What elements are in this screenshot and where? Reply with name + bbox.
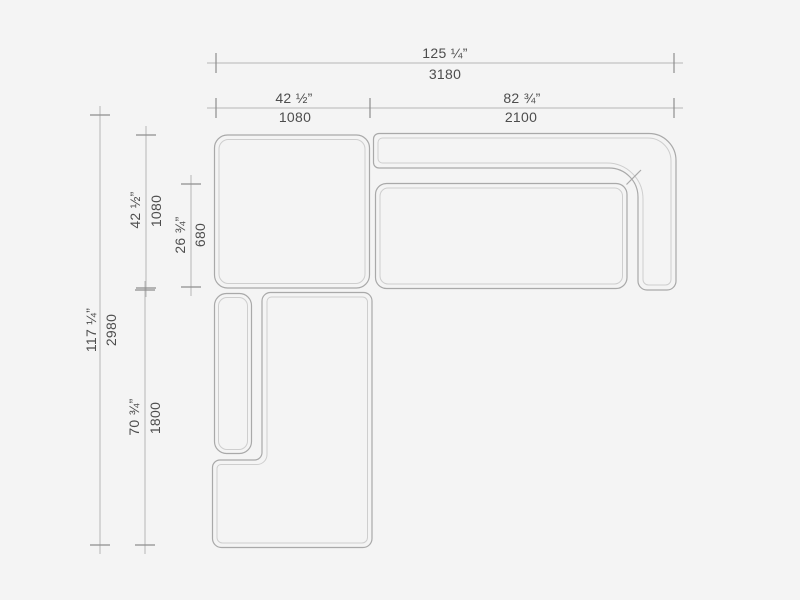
dim-overall-width-inches-label: 125 ¼”: [422, 46, 467, 60]
ottoman-cushion-line: [219, 140, 365, 284]
dim-seat-depth-inches-label: 26 ¾”: [173, 216, 187, 253]
ottoman-outline: [215, 135, 370, 288]
chaise-armrest-outline: [215, 294, 252, 454]
dim-top-module-depth-inches-label: 42 ½”: [128, 191, 142, 228]
dim-seat-depth-mm-label: 680: [193, 223, 207, 247]
chaise-armrest-cushion-line: [219, 298, 248, 450]
dim-right-module-width-mm-label: 2100: [505, 110, 537, 124]
dim-chaise-length-mm-label: 1800: [148, 402, 162, 434]
dim-right-module-width-inches-label: 82 ¾”: [503, 91, 540, 105]
dim-left-module-width-inches-label: 42 ½”: [275, 91, 312, 105]
dim-overall-depth-inches-label: 117 ¼”: [84, 308, 98, 352]
furniture-inner-lines: [217, 138, 671, 543]
dim-top-module-depth-mm-label: 1080: [149, 195, 163, 227]
dimension-lines: [100, 63, 683, 554]
chaise-seat-cushion-line: [217, 297, 368, 543]
dim-left-module-width-mm-label: 1080: [279, 110, 311, 124]
sofa-seat-outline: [376, 184, 628, 289]
sofa-seat-cushion-line: [380, 188, 623, 284]
dim-chaise-length-inches-label: 70 ¾”: [127, 398, 141, 435]
dim-overall-width-mm-label: 3180: [429, 67, 461, 81]
furniture-outlines: [213, 134, 677, 548]
dimension-tick-marks: [90, 53, 674, 545]
dim-overall-depth-mm-label: 2980: [104, 314, 118, 346]
sofa-dimension-diagram: 125 ¼” 3180 42 ½” 1080 82 ¾” 2100 117 ¼”…: [0, 0, 800, 600]
sofa-backrest-armrest-outline: [374, 134, 677, 291]
diagram-graphics: [0, 0, 800, 600]
chaise-seat-outline: [213, 293, 373, 548]
